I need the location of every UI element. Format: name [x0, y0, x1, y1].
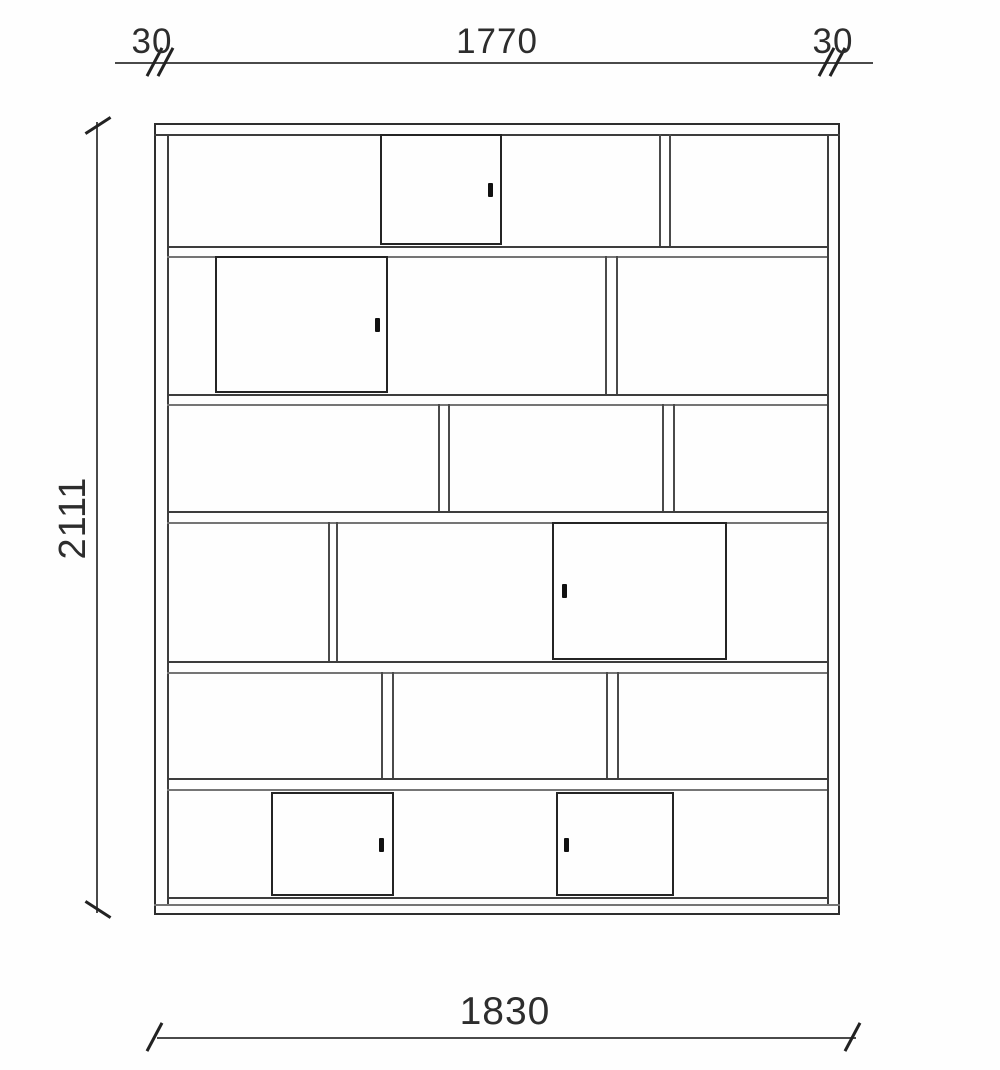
divider-line	[662, 404, 664, 511]
bottom-panel-inner-line	[154, 904, 840, 906]
shelf-line	[167, 404, 827, 406]
door-panel	[271, 792, 394, 896]
door-panel	[380, 134, 502, 245]
cabinet-elevation-drawing	[0, 0, 1000, 1070]
divider-line	[606, 672, 608, 778]
door-handle	[562, 584, 567, 598]
door-panel	[556, 792, 674, 896]
divider-line	[669, 134, 671, 246]
shelf-line	[167, 246, 827, 248]
shelf-line	[167, 778, 827, 780]
divider-line	[438, 404, 440, 511]
door-panel	[552, 522, 727, 660]
door-handle	[564, 838, 569, 852]
shelf-line	[167, 394, 827, 396]
shelf-line	[167, 522, 827, 524]
right-panel-inner-line	[827, 134, 829, 904]
door-handle	[488, 183, 493, 197]
bottom-shelf-line	[167, 897, 827, 899]
divider-line	[605, 256, 607, 394]
divider-line	[381, 672, 383, 778]
divider-line	[392, 672, 394, 778]
divider-line	[616, 256, 618, 394]
divider-line	[659, 134, 661, 246]
divider-line	[328, 522, 330, 661]
door-handle	[375, 318, 380, 332]
divider-line	[336, 522, 338, 661]
technical-drawing-page: 30 1770 30 2111 1830	[0, 0, 1000, 1070]
shelf-line	[167, 661, 827, 663]
door-handle	[379, 838, 384, 852]
door-panel	[215, 256, 388, 393]
divider-line	[617, 672, 619, 778]
shelf-line	[167, 511, 827, 513]
divider-line	[448, 404, 450, 511]
shelf-line	[167, 789, 827, 791]
divider-line	[673, 404, 675, 511]
shelf-line	[167, 672, 827, 674]
